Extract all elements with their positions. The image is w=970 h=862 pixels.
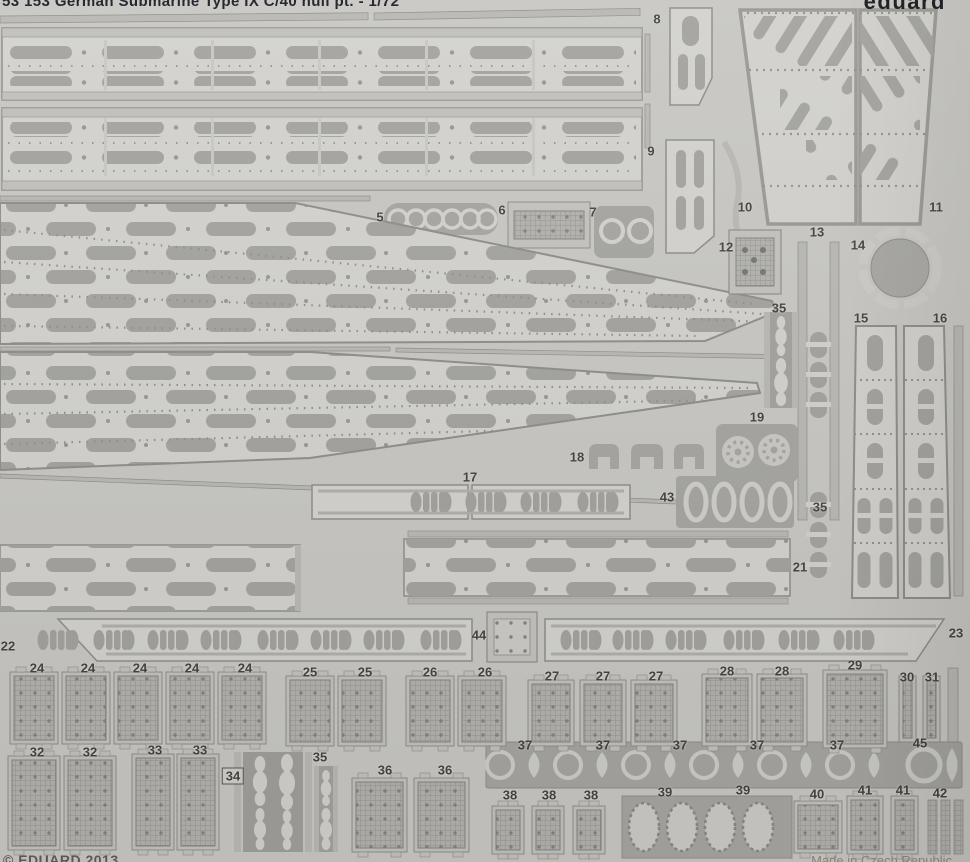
part-26-mesh-panel: [406, 671, 454, 751]
part-number-label: 29: [848, 658, 862, 673]
part-number-label: 25: [358, 665, 372, 680]
part-number-label: 37: [830, 738, 844, 753]
part-41-mesh-panel: [847, 791, 883, 859]
part-number-label: 37: [673, 738, 687, 753]
part-number-label: 19: [750, 410, 764, 425]
part-35-lower: [314, 766, 338, 852]
part-number-label: 42: [933, 786, 947, 801]
oval-slot-cluster: [578, 492, 619, 512]
part-24-mesh-panel: [10, 667, 58, 749]
part-number-label: 32: [83, 745, 97, 760]
part-number-label: 27: [545, 669, 559, 684]
part-number-label: 30: [900, 670, 914, 685]
part-number-label: 24: [30, 661, 44, 676]
part-38-mesh-panel: [573, 801, 605, 859]
part-32-mesh-panel: [64, 751, 116, 855]
oval-slot-cluster: [258, 630, 299, 650]
oval-slot-cluster: [201, 630, 242, 650]
part-11: [860, 10, 936, 224]
part-36-mesh-panel: [352, 773, 407, 857]
part-number-label: 35: [813, 500, 827, 515]
part-number-label: 16: [933, 311, 947, 326]
part-number-label: 12: [719, 240, 733, 255]
part-number-label: 11: [929, 200, 943, 215]
part-number-label: 35: [313, 750, 327, 765]
part-38-mesh-panel: [532, 801, 564, 859]
part-8: [670, 8, 712, 105]
oval-slot-cluster: [311, 630, 352, 650]
part-number-label: 37: [518, 738, 532, 753]
part-number-label: 39: [658, 785, 672, 800]
part-19: [716, 424, 798, 482]
part-number-label: 36: [378, 763, 392, 778]
part-number-label: 37: [596, 738, 610, 753]
deck-panel-upper: [0, 200, 780, 350]
part-38-mesh-panel: [492, 801, 524, 859]
part-number-label: 45: [913, 736, 927, 751]
oval-slot-cluster: [724, 630, 765, 650]
part-10: [740, 10, 856, 224]
part-number-label: 44: [472, 628, 486, 643]
origin-text: Made in Czech Republic: [811, 853, 952, 862]
part-number-label: 24: [238, 661, 252, 676]
part-26-mesh-panel: [458, 671, 506, 751]
part-15-16-strip: [852, 326, 898, 598]
part-number-label: 27: [596, 669, 610, 684]
part-25-mesh-panel: [286, 671, 334, 751]
part-24-mesh-panel: [166, 667, 214, 749]
copyright-text: © EDUARD 2013: [3, 852, 119, 862]
part-27-mesh-panel: [528, 675, 574, 751]
part-number-label: 24: [81, 661, 95, 676]
part-number-label: 21: [793, 560, 807, 575]
part-number-label: 15: [854, 311, 868, 326]
part-number-label: 33: [148, 743, 162, 758]
part-24-mesh-panel: [62, 667, 110, 749]
part-33-mesh-panel: [132, 749, 174, 855]
part-24-mesh-panel: [218, 667, 266, 749]
part-number-label: 13: [810, 225, 824, 240]
part-number-label: 36: [438, 763, 452, 778]
part-number-label: 37: [750, 738, 764, 753]
part-number-label: 10: [738, 200, 752, 215]
oval-slot-cluster: [834, 630, 875, 650]
part-number-label: 8: [653, 12, 660, 27]
deck-grating-strip-second: [2, 108, 642, 190]
part-number-label: 33: [193, 743, 207, 758]
part-number-label: 38: [503, 788, 517, 803]
part-25-mesh-panel: [338, 671, 386, 751]
part-number-label: 5: [376, 210, 383, 225]
part-18: [589, 444, 704, 469]
part-number-label: 40: [810, 787, 824, 802]
part-number-label: 26: [423, 665, 437, 680]
part-number-label: 41: [858, 783, 872, 798]
sheet-title: 53 153 German Submarine Type IX C/40 hul…: [2, 0, 399, 10]
part-33-mesh-panel: [177, 749, 219, 855]
part-number-label: 24: [133, 661, 147, 676]
part-number-label: 38: [584, 788, 598, 803]
part-27-mesh-panel: [631, 675, 677, 751]
part-37-strip: [486, 742, 962, 788]
part-15-16-strip: [904, 326, 950, 598]
oval-slot-cluster: [779, 630, 820, 650]
part-34: [234, 752, 312, 852]
part-number-label: 43: [660, 490, 674, 505]
part-14: [863, 231, 937, 305]
part-6: [508, 202, 590, 248]
part-number-label: 27: [649, 669, 663, 684]
part-number-label: 31: [925, 670, 939, 685]
oval-slot-cluster: [38, 630, 79, 650]
oval-slot-cluster: [94, 630, 135, 650]
part-41b-mesh-panel: [891, 791, 918, 859]
oval-slot-cluster: [148, 630, 189, 650]
part-35-upper: [764, 312, 798, 408]
part-7: [594, 206, 654, 258]
part-number-label: 24: [185, 661, 199, 676]
oval-slot-cluster: [561, 630, 602, 650]
part-number-label: 23: [949, 626, 963, 641]
part-number-label: 17: [463, 470, 477, 485]
part-number-label: 22: [1, 639, 15, 654]
oval-slot-cluster: [613, 630, 654, 650]
part-31-mesh-panel: [923, 676, 940, 742]
photo-etch-fret-graphic: [0, 0, 970, 862]
part-number-label: 26: [478, 665, 492, 680]
part-number-label: 34: [222, 768, 244, 785]
part-24-mesh-panel: [114, 667, 162, 749]
part-number-label: 6: [498, 203, 505, 218]
brand-logo: eduard: [864, 0, 946, 15]
part-number-label: 28: [720, 664, 734, 679]
oval-slot-cluster: [421, 630, 462, 650]
part-32-mesh-panel: [8, 751, 60, 855]
part-21: [404, 531, 790, 604]
part-number-label: 14: [851, 238, 865, 253]
part-number-label: 9: [647, 144, 654, 159]
oval-slot-cluster: [411, 492, 452, 512]
part-12: [729, 230, 781, 294]
part-number-label: 38: [542, 788, 556, 803]
part-40-mesh-panel: [794, 796, 842, 858]
part-number-label: 35: [772, 301, 786, 316]
part-30-mesh-panel: [899, 676, 916, 742]
part-36-mesh-panel: [414, 773, 469, 857]
part-42: [928, 800, 963, 854]
oval-slot-cluster: [521, 492, 562, 512]
part-number-label: 32: [30, 745, 44, 760]
deck-strip-left: [0, 545, 301, 611]
part-39: [622, 796, 792, 858]
oval-slot-cluster: [666, 630, 707, 650]
pe-fret-sheet: 53 153 German Submarine Type IX C/40 hul…: [0, 0, 970, 862]
part-43: [676, 476, 794, 528]
part-44: [487, 612, 537, 662]
part-28-mesh-panel: [702, 669, 752, 751]
part-number-label: 7: [589, 205, 596, 220]
part-number-label: 39: [736, 783, 750, 798]
part-number-label: 18: [570, 450, 584, 465]
part-number-label: 41: [896, 783, 910, 798]
oval-slot-cluster: [466, 492, 507, 512]
part-number-label: 28: [775, 664, 789, 679]
part-28-mesh-panel: [757, 669, 807, 751]
part-number-label: 25: [303, 665, 317, 680]
oval-slot-cluster: [364, 630, 405, 650]
part-15-16: [852, 326, 950, 598]
deck-grating-strip-top: [2, 28, 642, 100]
